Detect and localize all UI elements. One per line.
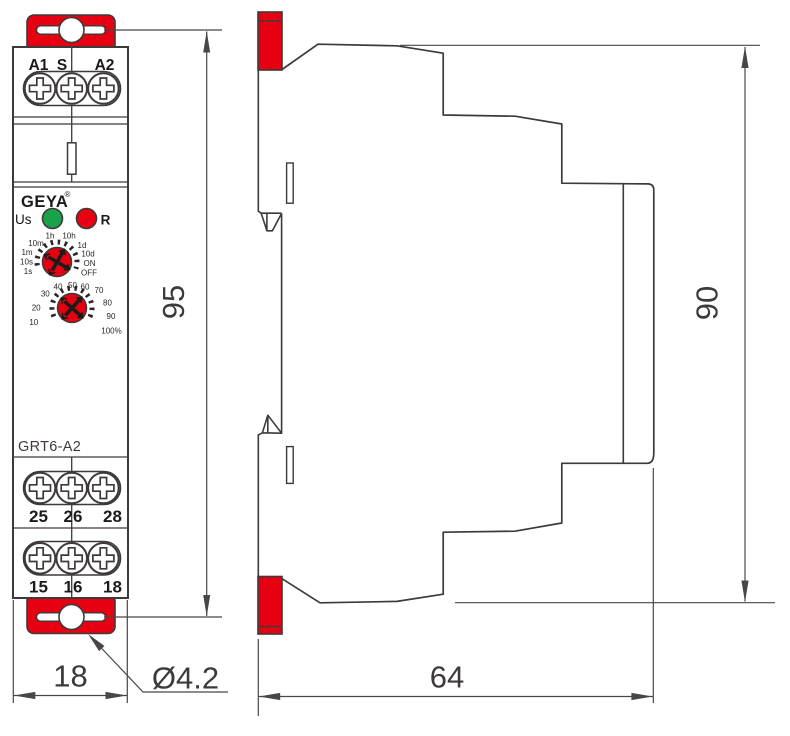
arrow-up-icon xyxy=(741,47,748,69)
din-rail-back-edge xyxy=(258,70,281,577)
front-view: A1 S A2 GEYA ® Us R 1s 10s 1m 10m xyxy=(13,15,128,634)
arrow-right-icon xyxy=(631,693,653,700)
dimension-value: 18 xyxy=(53,659,87,694)
power-led-label: Us xyxy=(15,212,32,227)
bottom-clip-hole xyxy=(59,605,84,630)
dimension-lines xyxy=(400,45,775,602)
dial-scale-label: 60 xyxy=(81,283,90,292)
dimension-value: Ø4.2 xyxy=(152,661,219,696)
dial-scale-label: 1h xyxy=(46,232,55,241)
dial-scale-label: 10d xyxy=(81,250,94,259)
terminal-label: 16 xyxy=(64,578,83,597)
dial-scale-label: 20 xyxy=(32,304,41,313)
dial-scale-label: 100% xyxy=(101,327,121,336)
vent-slot xyxy=(287,447,294,484)
vent-slot xyxy=(287,163,294,203)
side-view xyxy=(258,12,654,634)
dial-scale-label: 90 xyxy=(107,312,116,321)
relay-dimension-drawing: A1 S A2 GEYA ® Us R 1s 10s 1m 10m xyxy=(0,0,790,736)
arrow-up-icon xyxy=(203,31,210,53)
dimension-side-height: 90 xyxy=(400,45,775,602)
terminal-block-top xyxy=(24,72,121,106)
dial-scale-label: 10 xyxy=(29,318,38,327)
dial-scale-label: 30 xyxy=(41,290,50,299)
arrow-down-icon xyxy=(203,595,210,617)
dimension-depth: 64 xyxy=(258,468,653,716)
dial-scale-label: ON xyxy=(84,259,96,268)
dimension-value: 64 xyxy=(430,660,464,695)
terminal-label: 18 xyxy=(103,578,122,597)
power-led xyxy=(43,209,63,229)
fuse-symbol xyxy=(68,143,77,174)
arrow-left-icon xyxy=(14,692,36,699)
dial-scale-label: 10s xyxy=(20,258,33,267)
terminal-label: 25 xyxy=(29,507,48,526)
registered-mark: ® xyxy=(65,190,71,199)
arrow-left-icon xyxy=(259,693,281,700)
dial-scale-label: 1s xyxy=(24,267,32,276)
model-label: GRT6-A2 xyxy=(18,439,81,455)
brand-logo: GEYA xyxy=(21,193,68,211)
arrow-down-icon xyxy=(741,581,748,603)
terminal-label: 15 xyxy=(29,578,48,597)
terminal-block-bottom: 15 16 18 xyxy=(24,542,122,597)
dial-scale-label: 70 xyxy=(95,286,104,295)
dial-scale-label: OFF xyxy=(81,269,97,278)
terminal-label: 26 xyxy=(64,507,83,526)
relay-led-label: R xyxy=(101,213,111,228)
hole-diameter-callout: Ø4.2 xyxy=(88,634,228,696)
dial-scale-label: 80 xyxy=(103,299,112,308)
relay-led xyxy=(77,209,97,229)
dimension-value: 90 xyxy=(690,286,725,320)
top-clip-hole xyxy=(59,18,84,43)
dial-scale-label: 1m xyxy=(21,248,32,257)
terminal-block-mid: 25 26 28 xyxy=(24,472,122,527)
side-bottom-clip xyxy=(258,577,282,635)
dial-scale-label: 10m xyxy=(28,239,44,248)
terminal-label: 28 xyxy=(103,507,122,526)
dial-scale-label: 50 xyxy=(68,281,77,290)
dial-scale-label: 10h xyxy=(62,232,75,241)
technical-drawing-page: A1 S A2 GEYA ® Us R 1s 10s 1m 10m xyxy=(0,0,790,736)
dial-scale-label: 40 xyxy=(54,283,63,292)
side-body-outline xyxy=(282,44,654,603)
dimension-value: 95 xyxy=(156,285,191,319)
arrow-right-icon xyxy=(106,692,128,699)
